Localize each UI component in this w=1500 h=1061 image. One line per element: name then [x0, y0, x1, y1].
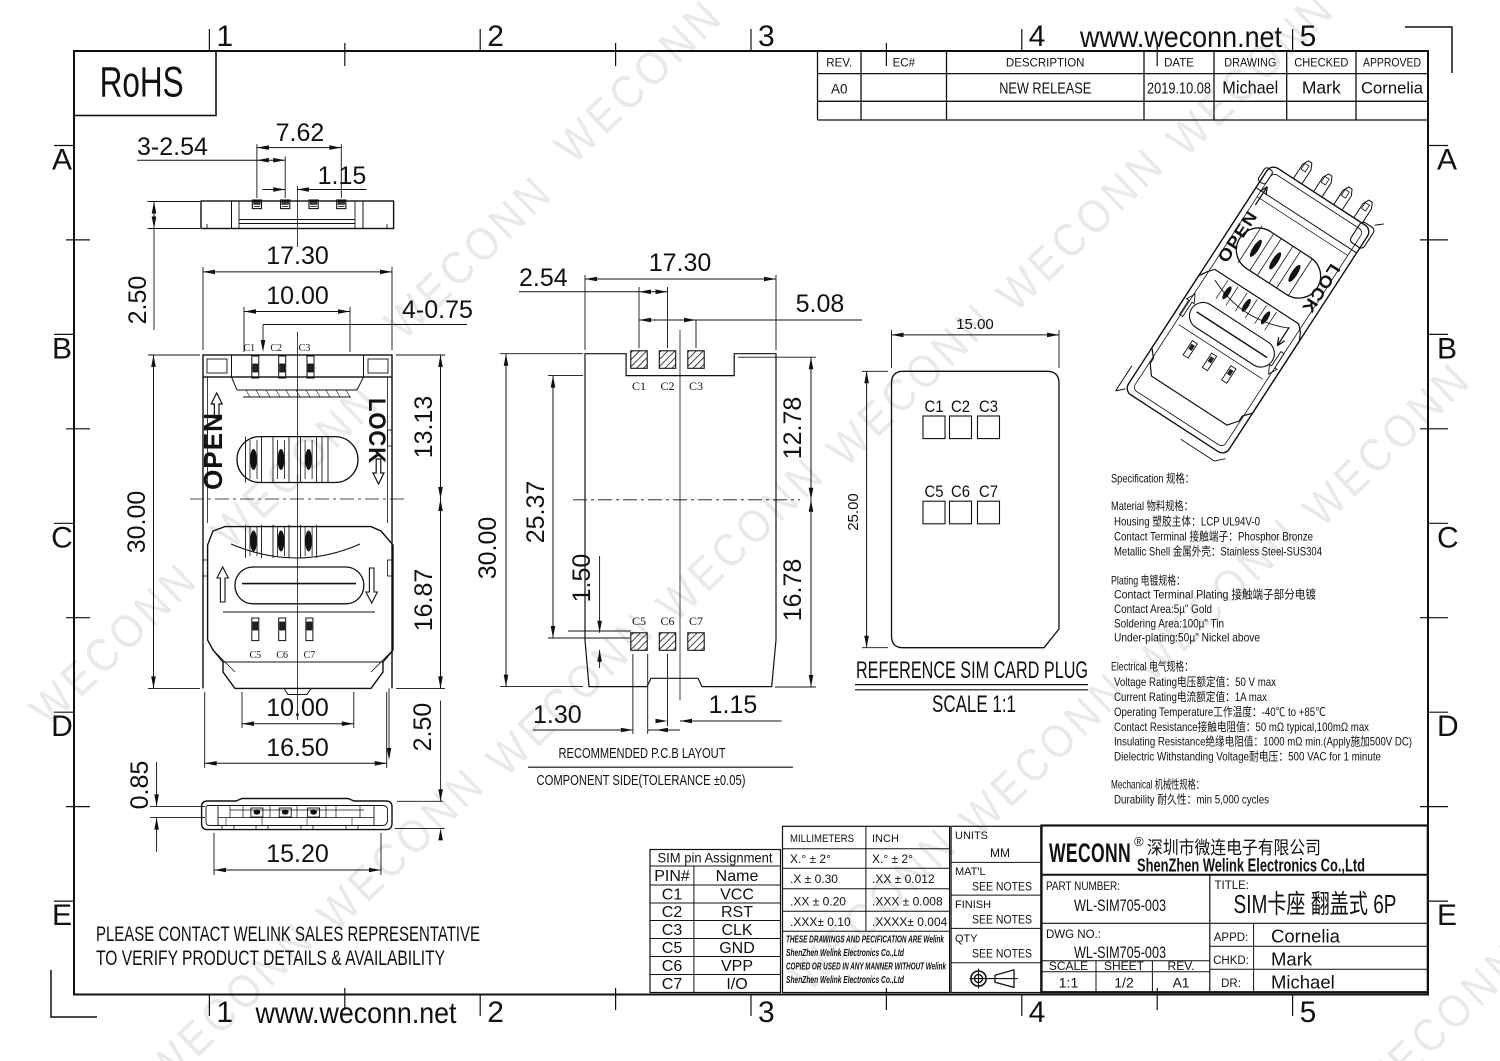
- svg-text:10.00: 10.00: [266, 282, 329, 310]
- svg-text:B: B: [1437, 332, 1457, 365]
- svg-text:3: 3: [758, 20, 775, 53]
- svg-text:C2: C2: [662, 904, 683, 921]
- svg-text:.XXX ± 0.008: .XXX ± 0.008: [872, 895, 943, 909]
- svg-text:REV.: REV.: [826, 58, 852, 70]
- svg-text:.XXXX± 0.004: .XXXX± 0.004: [872, 915, 948, 929]
- svg-text:WL-SIM705-003: WL-SIM705-003: [1074, 896, 1166, 915]
- svg-text:C5: C5: [662, 940, 683, 957]
- svg-text:SEE NOTES: SEE NOTES: [972, 880, 1032, 894]
- svg-text:Mechanical 机械性规格：: Mechanical 机械性规格：: [1111, 777, 1204, 792]
- svg-text:2: 2: [487, 20, 504, 53]
- svg-text:4: 4: [1029, 20, 1046, 53]
- svg-text:UNITS: UNITS: [955, 830, 988, 842]
- svg-text:.XXX± 0.10: .XXX± 0.10: [790, 915, 851, 929]
- svg-text:A: A: [1437, 144, 1457, 177]
- svg-text:VCC: VCC: [720, 887, 754, 904]
- svg-text:3-2.54: 3-2.54: [137, 133, 208, 161]
- svg-text:®: ®: [1134, 834, 1144, 849]
- svg-text:THESE DRAWINGS AND PECIFICATIO: THESE DRAWINGS AND PECIFICATION ARE Weli…: [786, 934, 945, 946]
- svg-text:Cornelia: Cornelia: [1271, 926, 1341, 947]
- svg-text:E: E: [52, 899, 72, 932]
- svg-text:INCH: INCH: [872, 833, 899, 845]
- svg-text:REV.: REV.: [1168, 959, 1195, 973]
- svg-text:Under-plating:50µ" Nickel abov: Under-plating:50µ" Nickel above: [1114, 631, 1260, 645]
- svg-text:Electrical 电气规格：: Electrical 电气规格：: [1111, 659, 1193, 674]
- svg-text:SIM卡座 翻盖式 6P: SIM卡座 翻盖式 6P: [1234, 889, 1397, 919]
- svg-text:Michael: Michael: [1271, 972, 1335, 993]
- svg-text:DESCRIPTION: DESCRIPTION: [1006, 58, 1085, 70]
- svg-text:C6: C6: [660, 614, 674, 628]
- svg-text:C1: C1: [243, 343, 255, 354]
- svg-text:COMPONENT SIDE(TOLERANCE ±0.05: COMPONENT SIDE(TOLERANCE ±0.05): [537, 772, 746, 789]
- svg-text:Specification 规格：: Specification 规格：: [1111, 470, 1194, 485]
- svg-text:C2: C2: [660, 379, 674, 393]
- svg-text:12.78: 12.78: [779, 397, 807, 460]
- svg-text:APPROVED: APPROVED: [1363, 58, 1421, 70]
- svg-text:REFERENCE SIM CARD PLUG: REFERENCE SIM CARD PLUG: [856, 657, 1088, 684]
- svg-text:VPP: VPP: [721, 958, 753, 975]
- svg-text:C3: C3: [299, 343, 311, 354]
- svg-text:0.85: 0.85: [126, 761, 154, 810]
- svg-text:SHEET: SHEET: [1104, 959, 1145, 973]
- svg-text:Insulating Resistance绝缘电阻值：100: Insulating Resistance绝缘电阻值：1000 mΩ min.(…: [1114, 734, 1412, 749]
- svg-text:CHECKED: CHECKED: [1294, 58, 1348, 70]
- svg-text:TO VERIFY PRODUCT DETAILS & AV: TO VERIFY PRODUCT DETAILS & AVAILABILITY: [96, 947, 445, 970]
- svg-text:Operating Temperature工作温度：-40℃: Operating Temperature工作温度：-40℃ to +85℃: [1114, 704, 1326, 719]
- svg-text:C1: C1: [662, 887, 683, 904]
- svg-text:Mark: Mark: [1271, 949, 1313, 970]
- svg-text:C7: C7: [304, 650, 316, 661]
- svg-text:SCALE: SCALE: [1049, 959, 1088, 973]
- svg-text:1.15: 1.15: [709, 691, 758, 719]
- svg-text:RoHS: RoHS: [100, 59, 184, 107]
- svg-text:SIM pin Assignment: SIM pin Assignment: [658, 850, 773, 866]
- svg-text:10.00: 10.00: [266, 694, 329, 722]
- svg-text:4-0.75: 4-0.75: [402, 296, 473, 324]
- svg-text:2.50: 2.50: [124, 276, 152, 325]
- svg-text:5: 5: [1300, 996, 1317, 1029]
- svg-text:C2: C2: [951, 398, 970, 416]
- svg-text:C3: C3: [979, 398, 998, 416]
- svg-text:DR:: DR:: [1221, 978, 1241, 990]
- svg-text:ShenZhen Welink Electronics Co: ShenZhen Welink Electronics Co.,Ltd: [786, 974, 904, 986]
- svg-text:X.° ± 2°: X.° ± 2°: [872, 852, 913, 866]
- svg-text:C7: C7: [662, 976, 683, 993]
- svg-text:EC#: EC#: [893, 58, 916, 70]
- svg-text:Mark: Mark: [1302, 78, 1341, 98]
- svg-text:1: 1: [216, 20, 233, 53]
- svg-text:Name: Name: [716, 868, 759, 885]
- svg-text:2.54: 2.54: [519, 264, 568, 292]
- svg-text:15.20: 15.20: [266, 840, 329, 868]
- svg-text:17.30: 17.30: [649, 249, 712, 277]
- svg-text:3: 3: [758, 996, 775, 1029]
- svg-text:30.00: 30.00: [474, 517, 502, 580]
- svg-text:NEW RELEASE: NEW RELEASE: [999, 81, 1091, 98]
- svg-text:C2: C2: [270, 343, 282, 354]
- svg-text:A1: A1: [1172, 975, 1189, 991]
- svg-text:25.00: 25.00: [845, 493, 862, 531]
- svg-text:1/2: 1/2: [1114, 975, 1134, 991]
- svg-text:5.08: 5.08: [796, 290, 845, 318]
- svg-text:C3: C3: [662, 922, 683, 939]
- svg-text:APPD:: APPD:: [1214, 932, 1249, 944]
- svg-text:DATE: DATE: [1164, 58, 1194, 70]
- svg-text:C6: C6: [951, 483, 970, 501]
- svg-text:CLK: CLK: [721, 922, 752, 939]
- svg-text:C5: C5: [632, 614, 646, 628]
- svg-text:2019.10.08: 2019.10.08: [1147, 81, 1211, 98]
- svg-text:E: E: [1437, 899, 1457, 932]
- svg-text:PLEASE CONTACT WELINK SALES RE: PLEASE CONTACT WELINK SALES REPRESENTATI…: [96, 923, 480, 946]
- svg-text:OPEN: OPEN: [198, 412, 228, 490]
- svg-text:C6: C6: [276, 650, 288, 661]
- svg-text:Housing 塑胶主体：LCP UL94V-0: Housing 塑胶主体：LCP UL94V-0: [1114, 513, 1260, 528]
- svg-text:C: C: [1437, 521, 1459, 554]
- svg-text:FINISH: FINISH: [955, 899, 991, 911]
- svg-text:Contact Resistance接触电阻值：50 mΩ: Contact Resistance接触电阻值：50 mΩ typical,10…: [1114, 719, 1369, 734]
- svg-text:WECONN: WECONN: [1049, 838, 1131, 868]
- svg-text:PIN#: PIN#: [654, 868, 690, 885]
- svg-text:4: 4: [1029, 996, 1046, 1029]
- svg-text:Michael: Michael: [1222, 78, 1278, 98]
- svg-text:2.50: 2.50: [409, 703, 437, 752]
- svg-text:Voltage Rating电压额定值：50 V max: Voltage Rating电压额定值：50 V max: [1114, 674, 1276, 689]
- svg-text:C1: C1: [632, 379, 646, 393]
- svg-text:ShenZhen Welink Electronics Co: ShenZhen Welink Electronics Co.,Ltd: [1137, 855, 1365, 876]
- svg-text:SEE NOTES: SEE NOTES: [972, 913, 1032, 927]
- svg-text:COPIED OR USED IN ANY MANNER W: COPIED OR USED IN ANY MANNER WITHOUT Wel…: [786, 961, 947, 973]
- svg-text:www.weconn.net: www.weconn.net: [1079, 21, 1282, 54]
- svg-text:GND: GND: [719, 940, 755, 957]
- svg-text:.X ± 0.30: .X ± 0.30: [790, 872, 838, 886]
- svg-text:LOCK: LOCK: [363, 398, 390, 464]
- svg-text:QTY: QTY: [955, 933, 978, 945]
- svg-text:.XX ± 0.012: .XX ± 0.012: [872, 872, 935, 886]
- svg-text:16.87: 16.87: [410, 569, 438, 632]
- svg-text:1:1: 1:1: [1059, 975, 1079, 991]
- svg-text:RECOMMENDED P.C.B LAYOUT: RECOMMENDED P.C.B LAYOUT: [559, 745, 726, 762]
- svg-text:Soldering Area:100µ" Tin: Soldering Area:100µ" Tin: [1114, 616, 1224, 630]
- svg-text:PART NUMBER:: PART NUMBER:: [1046, 881, 1120, 893]
- svg-text:MAT'L: MAT'L: [955, 866, 986, 878]
- svg-text:B: B: [52, 332, 72, 365]
- svg-text:1.15: 1.15: [318, 162, 367, 190]
- svg-text:Contact Terminal 接触端子：Phosphor: Contact Terminal 接触端子：Phosphor Bronze: [1114, 529, 1313, 544]
- svg-text:2: 2: [487, 996, 504, 1029]
- svg-text:Plating 电镀规格：: Plating 电镀规格：: [1111, 572, 1185, 587]
- svg-text:30.00: 30.00: [123, 491, 151, 554]
- svg-text:C3: C3: [689, 379, 703, 393]
- svg-text:RST: RST: [721, 904, 753, 921]
- svg-text:C5: C5: [249, 650, 261, 661]
- svg-text:Current Rating电流额定值：1A max: Current Rating电流额定值：1A max: [1114, 689, 1267, 704]
- svg-text:1.50: 1.50: [568, 554, 596, 603]
- svg-text:7.62: 7.62: [276, 119, 325, 147]
- svg-text:Metallic Shell 金属外壳：Stainless: Metallic Shell 金属外壳：Stainless Steel-SUS3…: [1114, 544, 1322, 559]
- svg-text:ShenZhen Welink Electronics Co: ShenZhen Welink Electronics Co.,Ltd: [786, 947, 904, 959]
- svg-text:MM: MM: [990, 846, 1010, 860]
- svg-text:Contact Terminal Plating: Contact Terminal Plating 接触端子部分电镀: [1114, 587, 1316, 602]
- svg-text:16.50: 16.50: [266, 734, 329, 762]
- svg-text:17.30: 17.30: [266, 242, 329, 270]
- svg-text:I/O: I/O: [726, 976, 747, 993]
- svg-text:D: D: [1437, 710, 1459, 743]
- svg-text:C7: C7: [689, 614, 703, 628]
- svg-text:MILLIMETERS: MILLIMETERS: [790, 833, 854, 845]
- svg-text:25.37: 25.37: [522, 481, 550, 544]
- svg-text:Dielectric Withstanding Voltag: Dielectric Withstanding Voltage耐电压：500 V…: [1114, 749, 1381, 763]
- svg-text:1: 1: [216, 996, 233, 1029]
- svg-text:5: 5: [1300, 20, 1317, 53]
- svg-text:A0: A0: [831, 82, 848, 97]
- svg-text:C7: C7: [979, 483, 998, 501]
- svg-text:C: C: [51, 521, 73, 554]
- svg-text:Contact Area:5µ" Gold: Contact Area:5µ" Gold: [1114, 602, 1212, 616]
- svg-text:D: D: [51, 710, 73, 743]
- svg-text:Durability 耐久性：min 5,000 cycle: Durability 耐久性：min 5,000 cycles: [1114, 792, 1269, 806]
- svg-text:CHKD:: CHKD:: [1213, 955, 1249, 967]
- svg-text:13.13: 13.13: [410, 396, 438, 459]
- svg-text:15.00: 15.00: [956, 316, 994, 333]
- svg-text:Cornelia: Cornelia: [1361, 80, 1424, 98]
- svg-text:16.78: 16.78: [779, 559, 807, 622]
- svg-text:1.30: 1.30: [533, 701, 582, 729]
- svg-text:www.weconn.net: www.weconn.net: [255, 997, 457, 1030]
- svg-text:C6: C6: [662, 958, 683, 975]
- svg-text:X.° ± 2°: X.° ± 2°: [790, 852, 831, 866]
- svg-text:DRAWING: DRAWING: [1224, 58, 1276, 70]
- svg-text:.XX ± 0.20: .XX ± 0.20: [790, 895, 846, 909]
- svg-text:A: A: [52, 144, 72, 177]
- svg-text:Material 物料规格：: Material 物料规格：: [1111, 498, 1193, 513]
- svg-text:C1: C1: [925, 398, 944, 416]
- svg-text:DWG NO.:: DWG NO.:: [1046, 929, 1101, 941]
- svg-text:SEE NOTES: SEE NOTES: [972, 947, 1032, 961]
- svg-text:C5: C5: [925, 483, 944, 501]
- svg-text:SCALE 1:1: SCALE 1:1: [932, 691, 1016, 718]
